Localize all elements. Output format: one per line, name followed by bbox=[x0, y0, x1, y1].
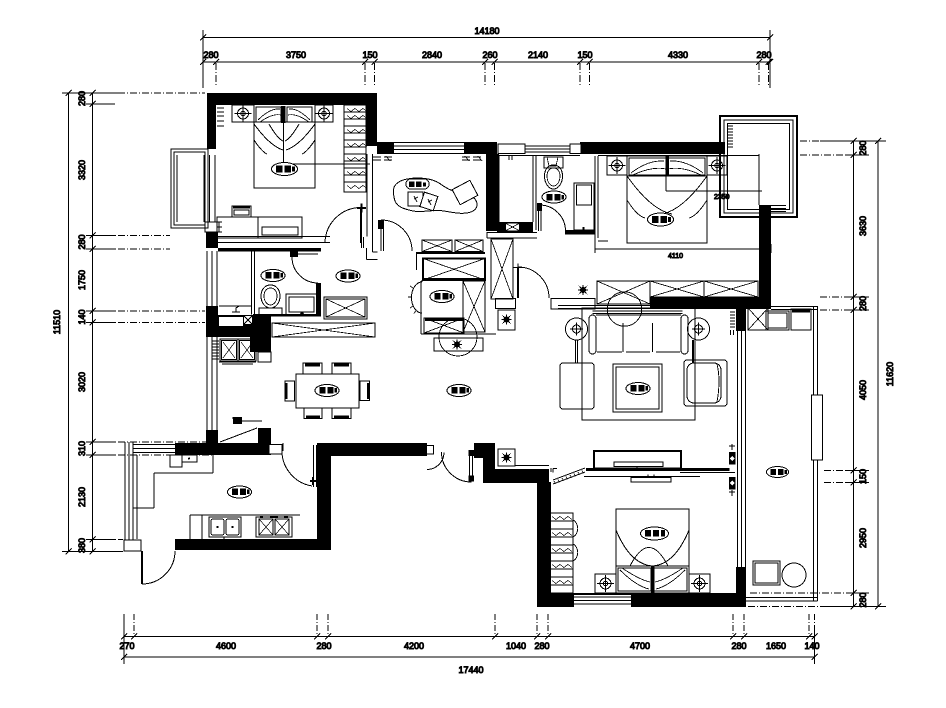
svg-text:280: 280 bbox=[316, 641, 331, 651]
svg-text:280: 280 bbox=[77, 234, 87, 249]
svg-text:280: 280 bbox=[858, 140, 868, 155]
svg-text:1650: 1650 bbox=[766, 641, 786, 651]
svg-text:310: 310 bbox=[77, 441, 87, 456]
svg-text:3630: 3630 bbox=[858, 216, 868, 236]
svg-text:140: 140 bbox=[77, 309, 87, 324]
svg-text:3750: 3750 bbox=[286, 50, 306, 60]
svg-text:280: 280 bbox=[756, 50, 771, 60]
svg-text:280: 280 bbox=[858, 592, 868, 607]
svg-text:1040: 1040 bbox=[506, 641, 526, 651]
svg-text:4200: 4200 bbox=[404, 641, 424, 651]
svg-text:2140: 2140 bbox=[528, 50, 548, 60]
svg-text:150: 150 bbox=[858, 469, 868, 484]
svg-text:2350: 2350 bbox=[714, 194, 730, 201]
svg-text:280: 280 bbox=[203, 50, 218, 60]
svg-text:140: 140 bbox=[804, 641, 819, 651]
svg-text:150: 150 bbox=[362, 50, 377, 60]
svg-text:3020: 3020 bbox=[77, 372, 87, 392]
svg-text:3320: 3320 bbox=[77, 160, 87, 180]
svg-text:4600: 4600 bbox=[216, 641, 236, 651]
svg-text:1750: 1750 bbox=[77, 270, 87, 290]
svg-text:4700: 4700 bbox=[630, 641, 650, 651]
svg-text:4050: 4050 bbox=[858, 380, 868, 400]
svg-text:270: 270 bbox=[119, 641, 134, 651]
svg-text:4330: 4330 bbox=[668, 50, 688, 60]
svg-text:17440: 17440 bbox=[458, 665, 483, 675]
svg-text:280: 280 bbox=[858, 296, 868, 311]
svg-text:2840: 2840 bbox=[422, 50, 442, 60]
svg-text:4110: 4110 bbox=[668, 253, 683, 260]
svg-text:11620: 11620 bbox=[885, 362, 895, 386]
svg-text:2950: 2950 bbox=[858, 528, 868, 548]
svg-text:280: 280 bbox=[77, 91, 87, 106]
svg-text:280: 280 bbox=[731, 641, 746, 651]
svg-text:14180: 14180 bbox=[474, 26, 499, 36]
svg-text:11510: 11510 bbox=[52, 310, 62, 334]
svg-text:260: 260 bbox=[482, 50, 497, 60]
svg-text:280: 280 bbox=[534, 641, 549, 651]
svg-text:2130: 2130 bbox=[77, 487, 87, 507]
svg-text:150: 150 bbox=[577, 50, 592, 60]
svg-text:380: 380 bbox=[77, 538, 87, 553]
